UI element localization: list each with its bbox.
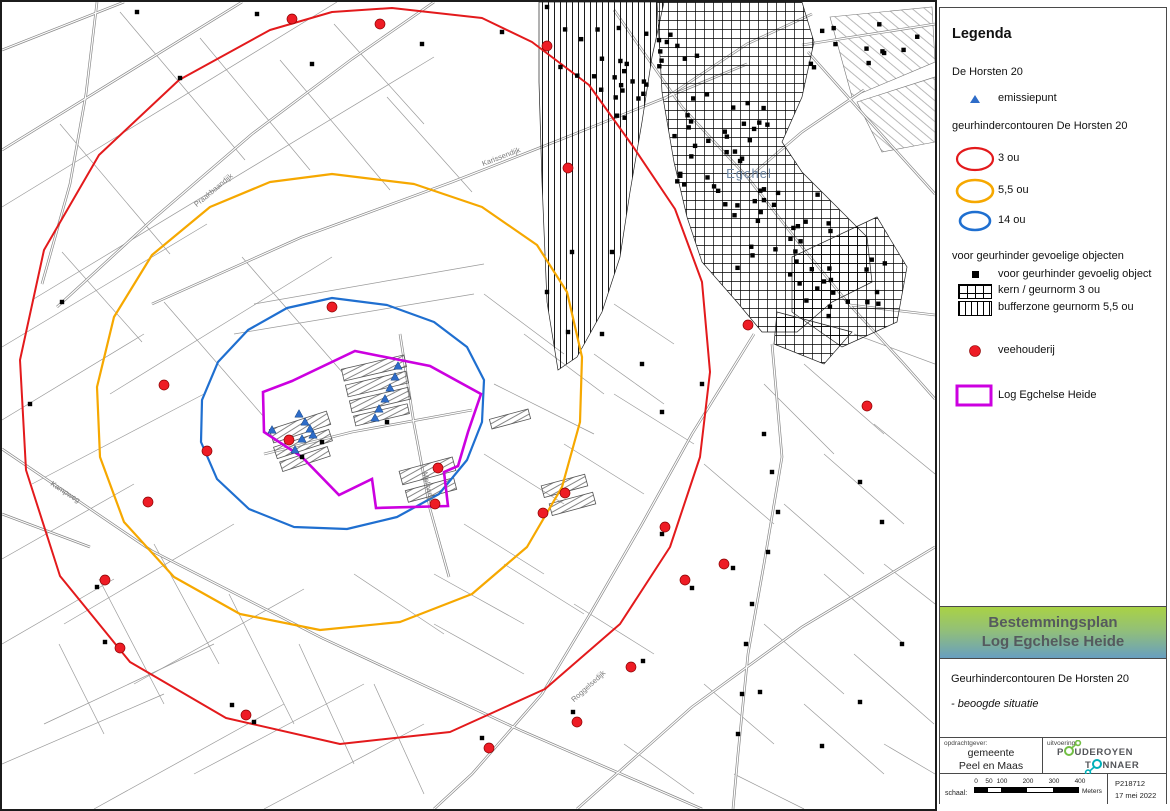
veehouderij-marker [660,522,670,532]
parcel-lines [2,2,935,809]
gevoelig-object-marker [831,26,835,30]
scale-unit: Meters [1082,788,1102,795]
gevoelig-object-marker [668,33,672,37]
gevoelig-object-marker [773,247,777,251]
veehouderij-marker [743,320,753,330]
gevoelig-object-marker [725,134,729,138]
gevoelig-object-marker [915,35,919,39]
gevoelig-object-marker [762,198,766,202]
gevoelig-object-marker [657,38,661,42]
gevoelig-object-marker [660,532,664,536]
gevoelig-object-marker [683,57,687,61]
town-label-egchel: Egchel [726,166,772,181]
topographic-map: KarissendijkPraakbaandijkMelkwegKampwegR… [2,2,935,809]
gevoelig-object-marker [636,96,640,100]
veehouderij-icon [952,344,998,358]
gevoelig-object-marker [570,250,574,254]
veehouderij-marker [287,14,297,24]
gevoelig-object-marker [545,290,549,294]
gevoelig-object-marker [815,192,819,196]
gevoelig-object-marker [563,27,567,31]
scale-tick: 50 [985,778,992,785]
pouderoyen-tonnaer-logo: P UDEROYEN T NNAER [1055,740,1163,776]
gevoelig-object-marker [689,119,693,123]
gevoelig-object-marker [630,79,634,83]
scale-tick: 100 [997,778,1008,785]
gevoelig-object-marker [675,44,679,48]
bufferzone-swatch [952,301,998,316]
scale-tick: 400 [1075,778,1086,785]
kern-label: kern / geurnorm 3 ou [998,284,1156,298]
veehouderij-marker [202,446,212,456]
gevoelig-object-marker [252,720,256,724]
gevoelig-object-marker [658,49,662,53]
gevoelig-object-marker [877,22,881,26]
gevoelig-object-marker [815,286,819,290]
gevoelig-object-marker [644,32,648,36]
gevoelig-object-marker [900,642,904,646]
gevoelig-object-marker [685,113,689,117]
gevoelig-object-marker [794,259,798,263]
gevoelig-object-marker [788,237,792,241]
gevoelig-object-marker [700,382,704,386]
gevoelig-object-marker [744,642,748,646]
objects-group-label: voor geurhinder gevoelige objecten [952,250,1156,262]
gevoelig-object-marker [826,314,830,318]
map-area: KarissendijkPraakbaandijkMelkwegKampwegR… [0,0,937,811]
scale-tick: 300 [1049,778,1060,785]
project-number: P218712 [1115,778,1166,790]
map-subtitle: Geurhindercontouren De Horsten 20 [951,673,1156,685]
gevoelig-object-marker [875,290,879,294]
gevoelig-object-marker [750,253,754,257]
roads [2,2,935,809]
veehouderij-marker [241,710,251,720]
gevoelig-object-label: voor geurhinder gevoelig object [998,268,1156,282]
gevoelig-object-marker [762,432,766,436]
gevoelig-object-marker [612,75,616,79]
gevoelig-object-marker [750,602,754,606]
hatched-fields [830,7,935,152]
svg-text:NNAER: NNAER [1103,760,1140,771]
gevoelig-object-marker [758,188,762,192]
gevoelig-object-marker [831,290,835,294]
gevoelig-object-marker [812,65,816,69]
gevoelig-object-marker [230,703,234,707]
contour-5-5ou-icon [952,178,998,204]
gevoelig-object-marker [858,480,862,484]
gevoelig-object-icon [952,271,998,278]
gevoelig-object-marker [600,57,604,61]
gevoelig-object-marker [733,149,737,153]
legend-title: Legenda [952,26,1156,42]
veehouderij-marker [719,559,729,569]
gevoelig-object-marker [788,272,792,276]
map-subtitle-block: Geurhindercontouren De Horsten 20 - beoo… [940,659,1166,738]
gevoelig-object-marker [772,203,776,207]
gevoelig-object-marker [675,179,679,183]
gevoelig-object-marker [566,330,570,334]
kern-swatch [952,284,998,299]
gevoelig-object-marker [865,300,869,304]
veehouderij-marker [680,575,690,585]
gevoelig-object-marker [797,281,801,285]
gevoelig-object-marker [820,744,824,748]
gevoelig-object-marker [691,96,695,100]
veehouderij-marker [560,488,570,498]
veehouderij-marker [572,717,582,727]
gevoelig-object-marker [615,113,619,117]
legend: Legenda De Horsten 20 emissiepunt geurhi… [940,8,1166,607]
bufferzone-label: bufferzone geurnorm 5,5 ou [998,301,1156,315]
plan-title-line2: Log Egchelse Heide [982,633,1125,652]
veehouderij-marker [433,463,443,473]
street-label: Kampweg [49,479,82,505]
emission-point-icon [952,94,998,104]
gevoelig-object-marker [28,402,32,406]
gevoelig-object-marker [833,42,837,46]
gevoelig-object-marker [723,129,727,133]
gevoelig-object-marker [776,510,780,514]
gevoelig-object-marker [753,199,757,203]
emission-point-label: emissiepunt [998,92,1156,106]
gevoelig-object-marker [103,640,107,644]
gevoelig-object-marker [820,29,824,33]
gevoelig-object-marker [748,138,752,142]
veehouderij-marker [542,41,552,51]
gevoelig-object-marker [641,92,645,96]
gevoelig-object-marker [595,27,599,31]
side-panel: Legenda De Horsten 20 emissiepunt geurhi… [937,0,1170,811]
veehouderij-marker [284,435,294,445]
client-name-line2: Peel en Maas [940,760,1042,773]
footer-credits: opdrachtgever: gemeente Peel en Maas uit… [940,738,1166,774]
svg-text:P: P [1057,747,1064,758]
gevoelig-object-marker [255,12,259,16]
gevoelig-object-marker [731,566,735,570]
gevoelig-object-marker [705,92,709,96]
gevoelig-object-marker [644,82,648,86]
gevoelig-object-marker [622,116,626,120]
gevoelig-object-marker [759,210,763,214]
contour-5-5ou-label: 5,5 ou [998,184,1156,198]
gevoelig-object-marker [757,120,761,124]
gevoelig-object-marker [883,261,887,265]
gevoelig-object-marker [803,220,807,224]
map-date: 17 mei 2022 [1115,790,1166,802]
gevoelig-object-marker [641,659,645,663]
gevoelig-object-marker [880,520,884,524]
veehouderij-marker [862,401,872,411]
scale-tick: 0 [974,778,978,785]
gevoelig-object-marker [610,250,614,254]
contours-group-label: geurhindercontouren De Horsten 20 [952,120,1156,132]
gevoelig-object-marker [723,202,727,206]
gevoelig-object-marker [712,184,716,188]
gevoelig-object-marker [765,122,769,126]
gevoelig-object-marker [735,266,739,270]
gevoelig-object-marker [480,736,484,740]
gevoelig-object-marker [695,54,699,58]
gevoelig-object-marker [870,257,874,261]
gevoelig-object-marker [600,332,604,336]
gevoelig-object-marker [706,139,710,143]
gevoelig-object-marker [672,134,676,138]
gevoelig-object-marker [420,42,424,46]
gevoelig-object-marker [310,62,314,66]
scale-label: schaal: [945,790,967,797]
contour-14ou-label: 14 ou [998,214,1156,228]
gevoelig-object-marker [678,172,682,176]
scale-bar: 0 50 100 200 300 400 Meters [974,778,1104,800]
log-label: Log Egchelse Heide [998,389,1156,403]
veehouderij-marker [143,497,153,507]
gevoelig-object-marker [732,213,736,217]
gevoelig-object-marker [826,221,830,225]
gevoelig-object-marker [745,101,749,105]
veehouderij-marker [626,662,636,672]
gevoelig-object-marker [864,267,868,271]
contour-3ou-label: 3 ou [998,152,1156,166]
log-swatch [952,384,998,408]
gevoelig-object-marker [858,700,862,704]
gevoelig-object-marker [690,586,694,590]
street-label: Praakbaandijk [192,171,234,209]
gevoelig-object-marker [758,690,762,694]
gevoelig-object-marker [738,159,742,163]
gevoelig-object-marker [793,249,797,253]
gevoelig-object-marker [864,46,868,50]
gevoelig-object-marker [60,300,64,304]
gevoelig-object-marker [693,144,697,148]
gevoelig-object-marker [791,226,795,230]
roads-centers [2,2,935,809]
gevoelig-object-marker [575,73,579,77]
gevoelig-object-marker [901,48,905,52]
gevoelig-object-marker [735,203,739,207]
gevoelig-object-marker [660,410,664,414]
gevoelig-object-marker [716,189,720,193]
gevoelig-object-marker [731,105,735,109]
gevoelig-object-marker [740,692,744,696]
client-label: opdrachtgever: [944,740,987,748]
gevoelig-object-marker [300,455,304,459]
veehouderij-marker [563,163,573,173]
gevoelig-object-marker [796,224,800,228]
veehouderij-label: veehouderij [998,344,1156,358]
gevoelig-object-marker [689,154,693,158]
gevoelig-object-marker [686,125,690,129]
gevoelig-object-marker [705,175,709,179]
footer-scale: schaal: 0 50 100 200 300 400 [940,774,1166,804]
gevoelig-object-marker [320,440,324,444]
gevoelig-object-marker [828,229,832,233]
gevoelig-object-marker [614,95,618,99]
veehouderij-marker [327,302,337,312]
gevoelig-object-marker [659,58,663,62]
map-subtitle-2: - beoogde situatie [951,698,1156,710]
street-label: Roggelsedijk [569,668,607,704]
gevoelig-object-marker [828,305,832,309]
gevoelig-object-marker [625,62,629,66]
emissiepunt-marker [295,410,303,418]
gevoelig-object-marker [385,420,389,424]
contour-14ou-icon [952,210,998,232]
gevoelig-object-marker [770,470,774,474]
gevoelig-object-marker [776,191,780,195]
gevoelig-object-marker [829,278,833,282]
gevoelig-object-marker [500,30,504,34]
gevoelig-object-marker [876,302,880,306]
svg-text:UDEROYEN: UDEROYEN [1075,747,1134,758]
veehouderij-marker [100,575,110,585]
gevoelig-object-marker [558,65,562,69]
legend-group-de-horsten: De Horsten 20 [952,66,1156,78]
veehouderij-marker [484,743,494,753]
scale-tick: 200 [1023,778,1034,785]
gevoelig-object-marker [618,59,622,63]
gevoelig-object-marker [599,88,603,92]
gevoelig-object-marker [761,106,765,110]
gevoelig-object-marker [619,83,623,87]
gevoelig-object-marker [592,74,596,78]
sheet: KarissendijkPraakbaandijkMelkwegKampwegR… [0,0,1170,811]
gevoelig-object-marker [880,49,884,53]
gevoelig-object-marker [682,182,686,186]
gevoelig-object-marker [766,550,770,554]
gevoelig-object-marker [545,5,549,9]
gevoelig-object-marker [846,300,850,304]
gevoelig-object-marker [804,298,808,302]
veehouderij-marker [159,380,169,390]
gevoelig-object-marker [95,585,99,589]
gevoelig-object-marker [135,10,139,14]
client-name-line1: gemeente [940,747,1042,760]
gevoelig-object-marker [749,245,753,249]
gevoelig-object-marker [571,710,575,714]
gevoelig-object-marker [622,69,626,73]
gevoelig-object-marker [617,26,621,30]
contour-3ou-icon [952,146,998,172]
gevoelig-object-marker [756,219,760,223]
gevoelig-object-marker [822,279,826,283]
gevoelig-object-marker [178,76,182,80]
veehouderij-marker [115,643,125,653]
gevoelig-object-marker [665,40,669,44]
gevoelig-object-marker [724,150,728,154]
gevoelig-object-marker [866,61,870,65]
gevoelig-object-marker [798,239,802,243]
gevoelig-object-marker [810,267,814,271]
gevoelig-object-marker [640,362,644,366]
gevoelig-object-marker [657,64,661,68]
gevoelig-object-marker [620,88,624,92]
gevoelig-object-marker [742,122,746,126]
gevoelig-object-marker [827,266,831,270]
veehouderij-marker [375,19,385,29]
plan-title-line1: Bestemmingsplan [988,614,1117,633]
gevoelig-object-marker [579,37,583,41]
gevoelig-object-marker [752,127,756,131]
plan-title-block: Bestemmingsplan Log Egchelse Heide [940,607,1166,659]
gevoelig-object-marker [736,732,740,736]
veehouderij-marker [538,508,548,518]
